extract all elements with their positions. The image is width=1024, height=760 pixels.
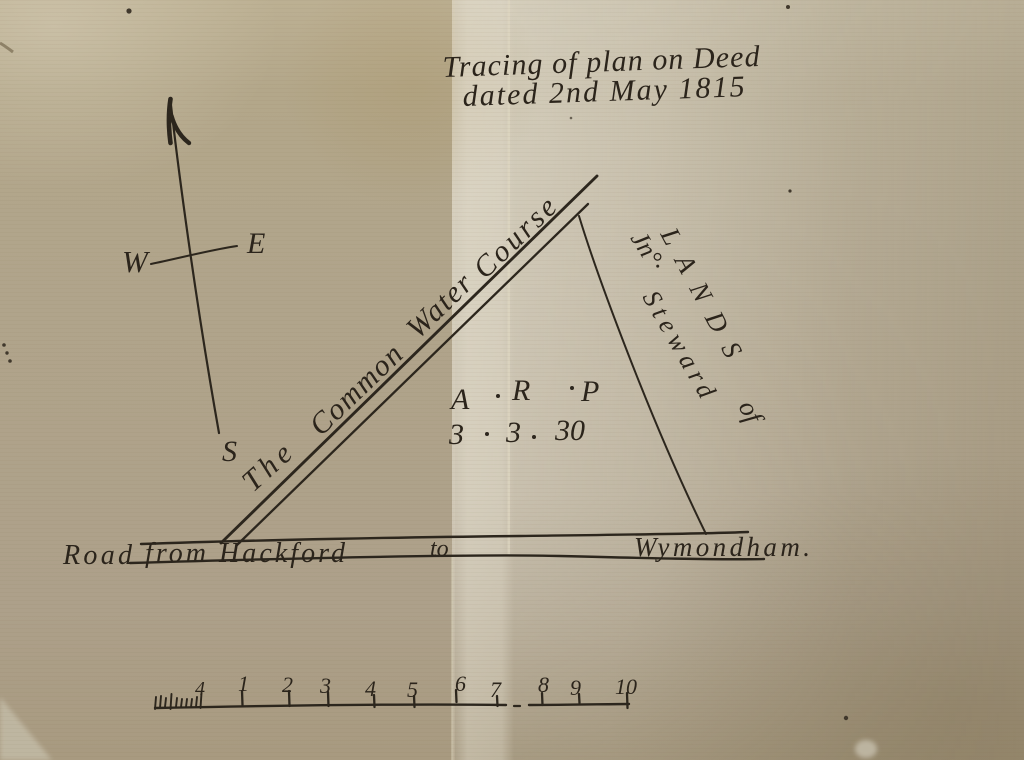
- svg-text:5: 5: [407, 677, 418, 702]
- svg-text:7: 7: [490, 677, 502, 702]
- svg-text:30: 30: [554, 414, 585, 447]
- svg-text:3: 3: [505, 416, 521, 449]
- svg-text:A: A: [449, 383, 470, 416]
- svg-text:6: 6: [455, 671, 466, 696]
- svg-text:E: E: [246, 227, 265, 260]
- svg-text:2: 2: [282, 672, 293, 697]
- svg-text:W: W: [122, 244, 151, 279]
- svg-text:R: R: [511, 374, 530, 407]
- svg-text:4: 4: [365, 676, 376, 701]
- svg-text:8: 8: [538, 672, 549, 697]
- svg-text:Wymondham.: Wymondham.: [634, 532, 810, 562]
- svg-text:S: S: [222, 435, 237, 468]
- svg-text:to: to: [430, 536, 449, 562]
- svg-text:1: 1: [238, 671, 249, 696]
- svg-text:3: 3: [448, 418, 464, 451]
- svg-text:P: P: [580, 375, 599, 408]
- svg-text:4: 4: [195, 678, 205, 700]
- svg-text:10: 10: [615, 674, 637, 699]
- svg-text:3: 3: [319, 673, 331, 698]
- svg-text:9: 9: [570, 675, 581, 700]
